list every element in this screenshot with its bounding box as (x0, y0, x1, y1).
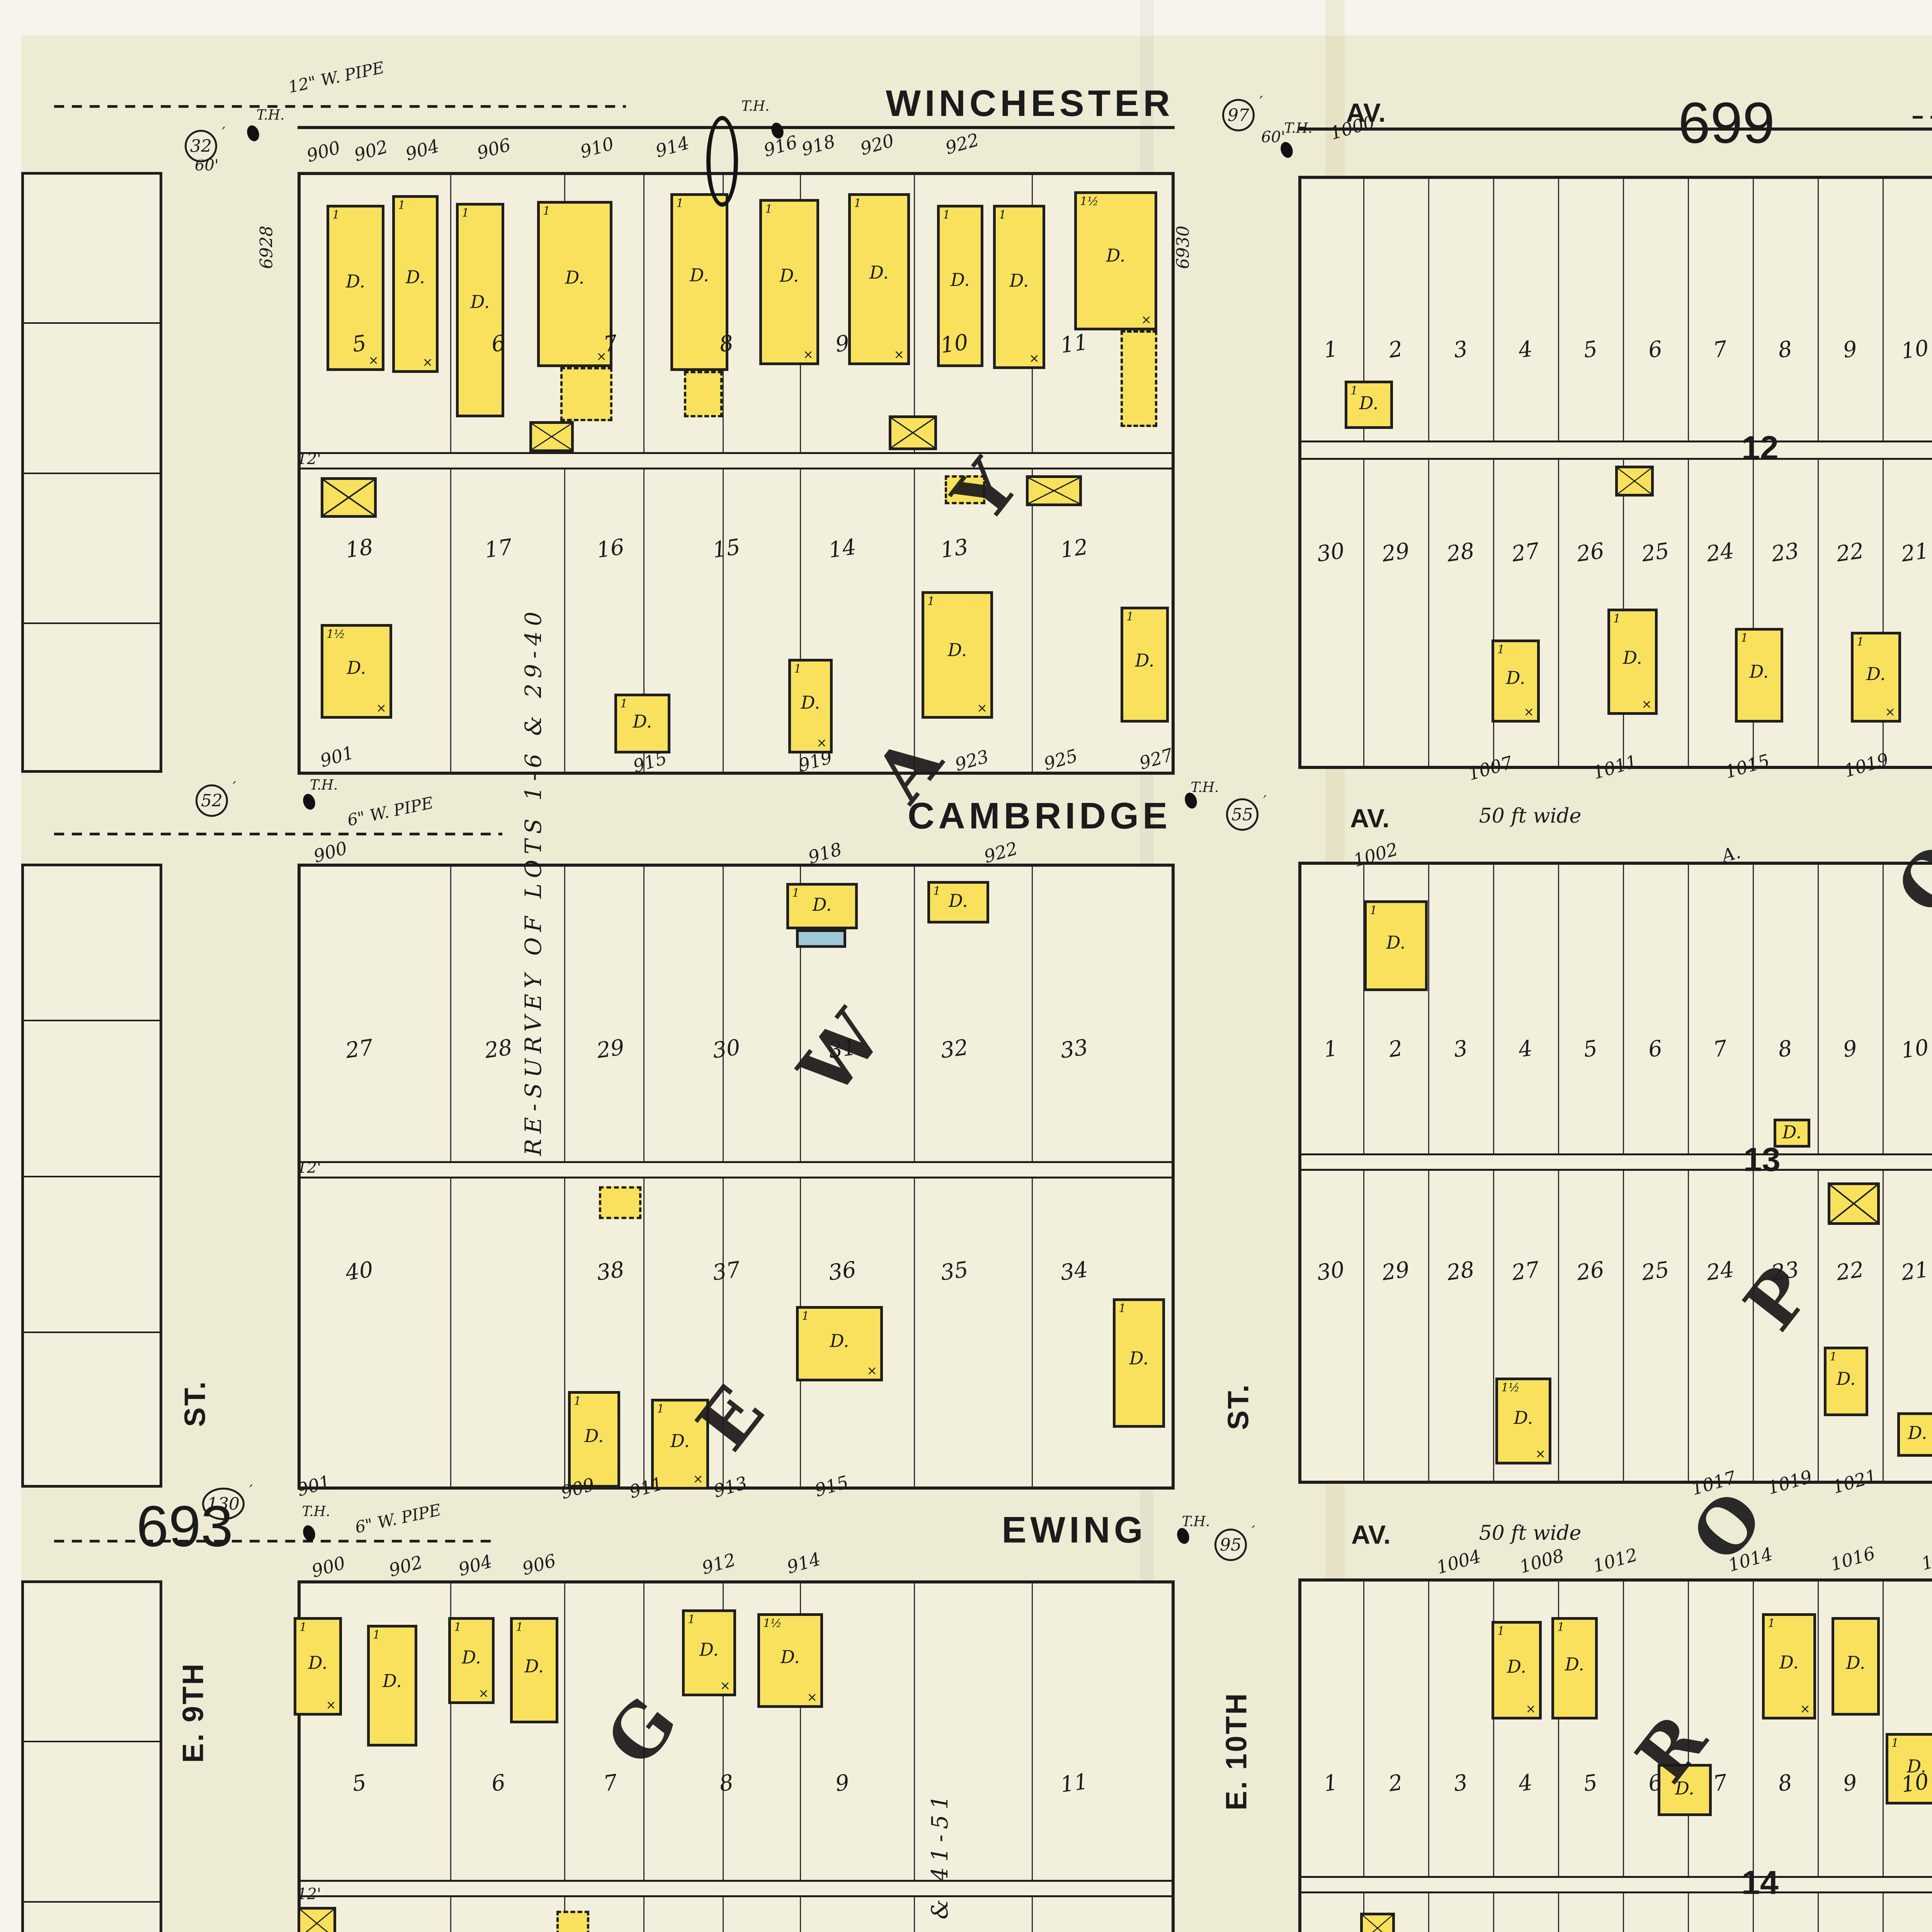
building-frame (684, 371, 723, 417)
building-stories: 1½ (1501, 1381, 1520, 1395)
building-label: D. (813, 894, 832, 915)
lot-number: 29 (595, 1035, 626, 1063)
house-number: 900 (311, 837, 349, 867)
lot-line (1032, 1895, 1033, 1932)
lot-line (1623, 1891, 1624, 1932)
distance-ref-prime: ′ (1263, 793, 1267, 810)
building-frame: D.1× (993, 205, 1045, 369)
building-frame: D.1 (1364, 900, 1428, 991)
lot-line (1428, 1581, 1429, 1876)
lot-number: 28 (483, 1035, 514, 1063)
lot-line (1428, 1891, 1429, 1932)
stub-lot-line (21, 1741, 162, 1742)
building-frame: D.1½× (1074, 191, 1157, 330)
building-x-mark: × (376, 701, 386, 715)
building-frame: D. (1832, 1617, 1880, 1716)
hydrant-label: T.H. (302, 1504, 330, 1520)
building-stories: 1 (1891, 1736, 1899, 1750)
building-frame: D.1 (927, 881, 989, 923)
lot-number: 24 (1705, 1257, 1736, 1286)
lot-number: 27 (344, 1035, 375, 1063)
lot-line (1688, 1169, 1689, 1481)
building-frame (1121, 330, 1157, 427)
building-x-mark: × (807, 1690, 817, 1704)
alley-line (298, 1161, 1175, 1163)
map-canvas: 32′97′41′52′55′60′130′95′115′140′137′194… (0, 0, 1932, 1932)
alley-line (1298, 1153, 1932, 1155)
building-stories: 1 (792, 886, 799, 900)
building-label: D. (1506, 667, 1526, 688)
lot-number: 35 (939, 1257, 970, 1286)
lot-line (564, 468, 565, 772)
lot-number: 30 (1315, 1257, 1346, 1286)
lot-line (643, 1177, 645, 1487)
house-number: 1018 (1919, 1542, 1932, 1574)
street-label: WINCHESTER (886, 82, 1173, 125)
lot-number: 32 (939, 1035, 970, 1063)
lot-line (1493, 1891, 1494, 1932)
lot-number: 23 (1770, 538, 1801, 567)
building-stories: 1 (1557, 1621, 1565, 1634)
building-stories: 1 (765, 202, 772, 216)
lot-line (1363, 458, 1364, 766)
survey-note: 7-17, 18-28 & 41-51 (927, 1790, 953, 1932)
building-frame: D.1× (848, 193, 910, 365)
building-frame: D.1× (922, 591, 993, 719)
lot-line (1558, 1169, 1559, 1481)
distance-ref: 55′ (1226, 798, 1259, 831)
building-label: D. (1750, 661, 1769, 682)
building-frame: D.1× (537, 201, 612, 367)
building-stories: 1 (373, 1628, 380, 1642)
alley-line (298, 468, 1175, 469)
building-frame: D.1 (786, 883, 858, 929)
stub-lot-line (21, 473, 162, 474)
lot-line (564, 866, 565, 1161)
street-label: CAMBRIDGE (908, 795, 1171, 837)
building-label: D. (633, 711, 652, 732)
building-frame (1360, 1913, 1395, 1932)
building-stories: 1 (1497, 1624, 1505, 1638)
lot-line (1883, 179, 1884, 440)
lot-number: 26 (1575, 1257, 1606, 1286)
building-frame: D. (1897, 1412, 1932, 1457)
map-line (1298, 128, 1932, 131)
building-x-mark: × (1641, 697, 1652, 711)
street-label: EWING (1002, 1509, 1146, 1551)
alley-line (298, 1177, 1175, 1179)
house-number: 902 (352, 136, 390, 165)
stub-lot-line (21, 322, 162, 324)
lot-line (800, 1895, 801, 1932)
building-frame: D.1½× (1495, 1378, 1551, 1464)
house-number: 910 (578, 133, 616, 162)
lot-line (1428, 179, 1429, 440)
building-label: D. (1908, 1422, 1927, 1443)
house-number: 1016 (1828, 1543, 1877, 1575)
building-label: D. (1846, 1652, 1866, 1673)
building-x-mark: × (1524, 704, 1534, 719)
street-width-note: 50 ft wide (1479, 804, 1582, 828)
lot-number: 11 (1059, 1769, 1090, 1798)
building-frame (560, 367, 612, 421)
building-label: D. (949, 890, 968, 911)
house-number: 914 (653, 132, 691, 162)
lot-line (1818, 1891, 1819, 1932)
building-stories: 1 (299, 1621, 307, 1634)
lot-number: 10 (939, 330, 970, 358)
building-stories: 1 (943, 208, 950, 222)
vertical-street-label: ST. (1222, 1383, 1255, 1430)
building-frame: D.1 (1113, 1298, 1165, 1428)
alley-line (1298, 458, 1932, 460)
building-stories: 1 (516, 1621, 523, 1634)
lot-number: 18 (344, 534, 375, 563)
alley-line (298, 452, 1175, 454)
distance-ref-prime: ′ (1259, 93, 1263, 110)
stub-lot-line (21, 1901, 162, 1903)
dimension-label: 12' (297, 1159, 321, 1177)
building-frame: D.1× (1762, 1613, 1816, 1719)
building-stories: 1 (454, 1621, 461, 1634)
building-label: D. (1779, 1652, 1799, 1673)
house-number: 900 (309, 1552, 347, 1582)
page-number-west: 693 (136, 1493, 233, 1560)
lot-line (1558, 1891, 1559, 1932)
lot-number: 24 (1705, 538, 1736, 567)
building-x-mark: × (720, 1678, 730, 1693)
lot-line (723, 1895, 724, 1932)
alley-line (1298, 1169, 1932, 1171)
building-label: D. (690, 265, 709, 286)
building-label: D. (347, 657, 366, 678)
hydrant-label: T.H. (1284, 121, 1312, 136)
building-stories: 1 (1370, 904, 1377, 917)
survey-note: RE-SURVEY OF LOTS 1-6 & 29-40 (520, 606, 546, 1156)
house-number: 904 (456, 1551, 494, 1580)
water-pipe-label: 6" W. PIPE (346, 793, 435, 830)
building-x-mark: × (803, 347, 813, 362)
building-stories: 1 (1741, 631, 1748, 645)
building-frame: D.1½× (321, 624, 392, 719)
lot-line (914, 468, 915, 772)
building-label: D. (951, 269, 970, 290)
building-frame (599, 1186, 641, 1219)
dimension-label: 12' (297, 450, 321, 468)
building-frame: D.1× (788, 659, 833, 753)
house-number: 904 (403, 135, 441, 165)
building-label: D. (830, 1330, 849, 1351)
building-frame: D.1½× (757, 1613, 823, 1708)
lot-line (1032, 468, 1033, 772)
building-x-mark: × (1029, 351, 1039, 366)
building-frame: D.1 (614, 694, 670, 753)
distance-ref: 52′ (196, 784, 228, 817)
building-frame: D.1× (796, 1306, 883, 1381)
building-frame (556, 1911, 589, 1932)
lot-number: 34 (1059, 1257, 1090, 1286)
building-stories: 1 (398, 199, 405, 212)
house-number: 914 (784, 1548, 823, 1578)
lot-line (1032, 1583, 1033, 1880)
hydrant-dot (301, 792, 317, 811)
building-stories: 1 (1497, 643, 1505, 656)
building-frame (1026, 475, 1082, 506)
lot-line (450, 866, 451, 1161)
lot-number: 16 (595, 534, 626, 563)
lot-line (1753, 864, 1754, 1153)
distance-ref-prime: ′ (233, 779, 236, 796)
lot-number: 38 (595, 1257, 626, 1286)
stub-lot-line (21, 1176, 162, 1177)
building-label: D. (308, 1652, 328, 1673)
street-suffix: AV. (1351, 1520, 1391, 1550)
block-number: 14 (1742, 1864, 1779, 1902)
lot-number: 26 (1575, 538, 1606, 567)
building-stories: 1 (688, 1613, 695, 1626)
building-label: D. (1866, 663, 1886, 684)
building-label: D. (1129, 1348, 1149, 1369)
lot-line (1623, 864, 1624, 1153)
water-pipe-line (54, 105, 626, 108)
hydrant-label: T.H. (256, 107, 284, 123)
lot-line (643, 175, 645, 452)
block-outline (298, 1580, 1175, 1932)
building-frame: D.1× (759, 199, 819, 365)
building-frame: D.1× (294, 1617, 342, 1716)
building-stories: 1 (999, 208, 1006, 222)
building-x-mark: × (1800, 1701, 1810, 1716)
building-frame (1615, 466, 1654, 497)
lot-line (1883, 864, 1884, 1153)
building-frame: D.1 (1551, 1617, 1598, 1719)
building-stone (796, 929, 846, 948)
building-x-mark: × (693, 1471, 703, 1486)
distance-ref-prime: ′ (1252, 1523, 1255, 1540)
vertical-street-label: ST. (179, 1380, 212, 1427)
building-stories: 1 (927, 595, 935, 608)
building-frame (529, 421, 574, 452)
lot-line (1818, 1169, 1819, 1481)
building-x-mark: × (326, 1697, 336, 1712)
building-frame: D.1 (1345, 381, 1393, 429)
building-label: D. (525, 1656, 544, 1677)
building-frame: D.1× (1492, 639, 1540, 723)
lot-line (1883, 1169, 1884, 1481)
building-label: D. (869, 262, 889, 283)
building-label: D. (1386, 932, 1406, 953)
building-stories: 1 (1350, 384, 1358, 398)
building-stories: 1 (794, 662, 801, 676)
lot-number: 10 (1900, 1769, 1930, 1798)
lot-number: 23 (1770, 1257, 1801, 1286)
lot-number: 25 (1640, 538, 1671, 567)
building-x-mark: × (478, 1686, 489, 1701)
lot-line (1818, 179, 1819, 440)
building-label: D. (670, 1430, 690, 1451)
cistern-oval (706, 116, 738, 207)
building-label: D. (565, 267, 585, 288)
dimension-label: 12' (297, 1885, 321, 1903)
lot-line (1493, 179, 1494, 440)
lot-line (1883, 1891, 1884, 1932)
lot-number: 36 (827, 1257, 858, 1286)
building-frame: D.1× (682, 1609, 736, 1696)
lot-line (914, 1177, 915, 1487)
building-frame: D.1 (510, 1617, 558, 1723)
lot-number: 28 (1445, 538, 1476, 567)
distance-ref-prime: ′ (249, 1482, 253, 1499)
lot-line (1818, 864, 1819, 1153)
lot-number: 25 (1640, 1257, 1671, 1286)
lot-line (643, 866, 645, 1161)
building-label: D. (406, 267, 425, 287)
hydrant-label: T.H. (741, 99, 769, 114)
water-pipe-line (54, 833, 502, 835)
building-label: D. (948, 639, 967, 660)
building-x-mark: × (894, 347, 904, 362)
building-x-mark: × (1141, 312, 1151, 327)
lot-number: 27 (1510, 1257, 1541, 1286)
lot-line (1688, 179, 1689, 440)
building-label: D. (471, 291, 490, 312)
lot-number: 17 (483, 534, 514, 563)
lot-line (450, 175, 451, 452)
lot-line (1428, 1169, 1429, 1481)
street-suffix: AV. (1350, 803, 1389, 833)
building-frame: D.1 (367, 1625, 417, 1747)
corner-house-number: 6928 (257, 226, 277, 269)
water-pipe-label: 6" W. PIPE (354, 1500, 443, 1537)
hydrant-dot (245, 124, 261, 143)
lot-line (1688, 1891, 1689, 1932)
house-number: 906 (474, 134, 513, 163)
stub-lot-line (21, 622, 162, 624)
lot-line (1493, 864, 1494, 1153)
building-stories: 1 (543, 204, 550, 218)
building-label: D. (801, 692, 820, 713)
alley-line (298, 1895, 1175, 1897)
building-frame: D.1× (1607, 609, 1658, 715)
lot-number: 27 (1510, 538, 1541, 567)
building-frame (298, 1907, 336, 1932)
lot-line (1363, 1581, 1364, 1876)
alley-line (1298, 440, 1932, 442)
lot-number: 21 (1900, 538, 1930, 567)
lot-line (1883, 1581, 1884, 1876)
lot-number: 22 (1835, 1257, 1866, 1286)
building-frame (321, 477, 377, 518)
building-label: D. (1782, 1122, 1802, 1143)
stub-lot-line (21, 1332, 162, 1333)
block-number: 13 (1743, 1141, 1781, 1179)
building-stories: 1 (657, 1402, 664, 1416)
building-stories: 1 (1126, 610, 1134, 624)
lot-line (1753, 179, 1754, 440)
block-number: 12 (1742, 429, 1779, 468)
water-pipe-label: 12" W. PIPE (286, 58, 386, 97)
lot-line (1688, 458, 1689, 766)
lot-number: 14 (827, 534, 858, 563)
distance-ref-prime: ′ (222, 124, 225, 141)
lot-line (1363, 1169, 1364, 1481)
building-x-mark: × (1535, 1446, 1546, 1461)
building-label: D. (1359, 393, 1379, 413)
building-label: D. (1514, 1407, 1533, 1428)
house-number: 1004 (1434, 1546, 1483, 1578)
distance-ref: 32′ (185, 130, 217, 162)
building-stories: 1 (933, 884, 940, 898)
building-label: D. (1623, 647, 1642, 668)
building-label: D. (1507, 1656, 1526, 1677)
building-label: D. (781, 1646, 800, 1667)
block-stub (21, 1580, 162, 1932)
lot-number: 12 (1059, 534, 1090, 563)
water-pipe-line (54, 1540, 495, 1543)
building-stories: 1 (676, 197, 684, 210)
vertical-street-label: E. 9TH (177, 1662, 210, 1763)
lot-line (1032, 1177, 1033, 1487)
map-line (298, 126, 1175, 129)
lot-number: 30 (711, 1035, 742, 1063)
building-x-mark: × (867, 1363, 877, 1378)
alley-line (298, 1880, 1175, 1882)
corner-house-number: 6930 (1173, 226, 1193, 269)
building-stories: 1 (1119, 1302, 1126, 1315)
lot-line (1623, 1169, 1624, 1481)
distance-ref: 97′ (1222, 99, 1255, 131)
lot-line (1558, 864, 1559, 1153)
building-label: D. (1565, 1654, 1584, 1675)
house-number: 1008 (1517, 1545, 1566, 1577)
lot-line (914, 1583, 915, 1880)
building-label: D. (1010, 270, 1029, 291)
lot-line (723, 468, 724, 772)
lot-number: 29 (1380, 538, 1411, 567)
lot-line (450, 468, 451, 772)
block-number-north: 699 (1678, 90, 1775, 156)
building-label: D. (346, 271, 365, 292)
street-width-note: 50 ft wide (1479, 1522, 1582, 1545)
building-stories: 1½ (327, 628, 345, 641)
building-x-mark: × (1526, 1701, 1536, 1716)
lot-number: 28 (1445, 1257, 1476, 1286)
lot-number: 33 (1059, 1035, 1090, 1063)
building-frame: D.1 (1121, 607, 1169, 723)
sanborn-map-sheet: 32′97′41′52′55′60′130′95′115′140′137′194… (0, 0, 1932, 1932)
lot-line (914, 866, 915, 1161)
alley-line (1298, 1891, 1932, 1893)
hydrant-label: T.H. (310, 777, 338, 793)
lot-number: 15 (711, 534, 742, 563)
building-frame: D.1 (568, 1391, 620, 1488)
lot-number: 11 (1059, 330, 1090, 358)
building-stories: 1½ (763, 1617, 782, 1630)
lot-line (1493, 1169, 1494, 1481)
lot-line (450, 1895, 451, 1932)
building-stories: 1 (332, 208, 340, 222)
lot-number: 10 (1900, 1035, 1930, 1063)
house-number: 920 (858, 130, 896, 159)
building-stories: 1 (802, 1310, 809, 1323)
distance-ref: 95′ (1214, 1529, 1247, 1561)
building-x-mark: × (977, 701, 987, 715)
lot-line (1558, 179, 1559, 440)
stub-lot-line (21, 1020, 162, 1021)
house-number: 906 (520, 1550, 558, 1579)
building-label: D. (780, 265, 799, 286)
vertical-street-label: E. 10TH (1220, 1692, 1253, 1811)
